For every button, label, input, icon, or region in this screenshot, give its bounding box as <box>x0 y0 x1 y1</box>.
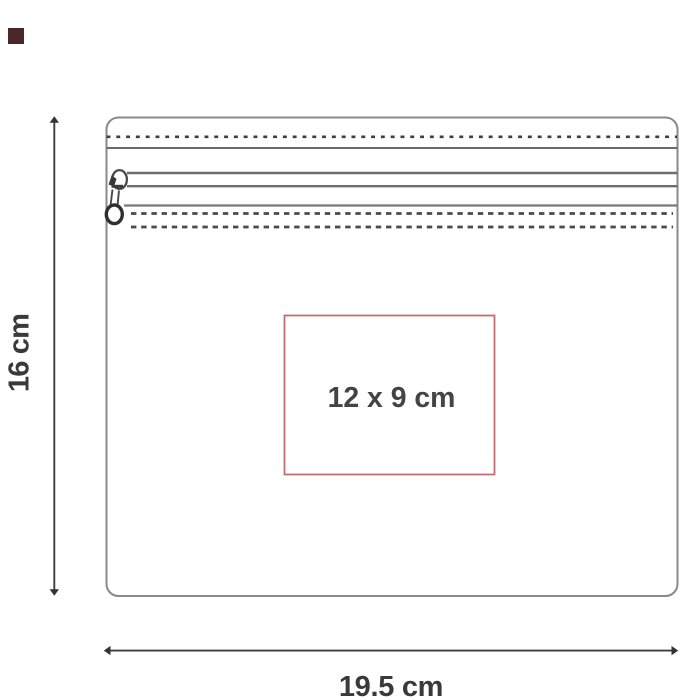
svg-text:16 cm: 16 cm <box>4 314 36 392</box>
svg-text:19.5 cm: 19.5 cm <box>339 671 443 700</box>
svg-text:12 x 9 cm: 12 x 9 cm <box>328 382 456 414</box>
